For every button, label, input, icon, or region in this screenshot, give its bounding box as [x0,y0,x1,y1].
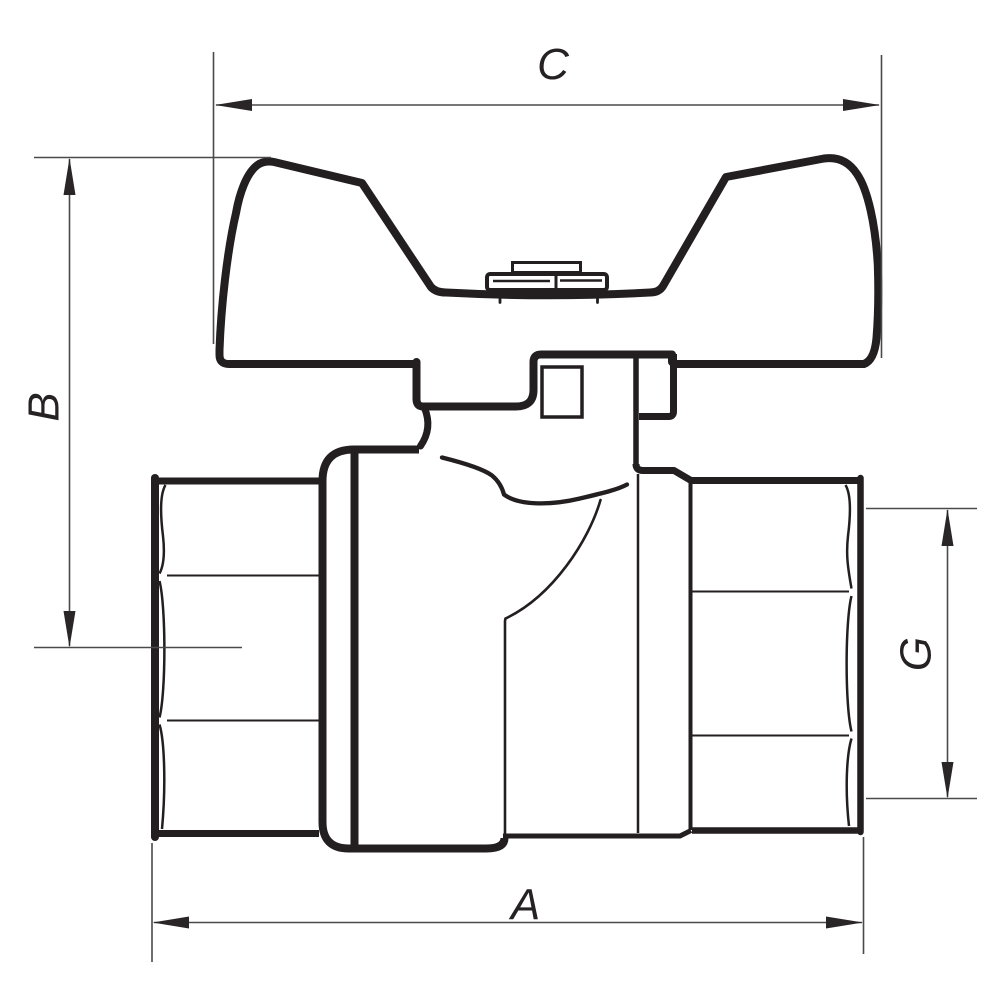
svg-text:B: B [20,392,69,421]
svg-text:A: A [508,881,540,930]
svg-text:C: C [537,40,570,89]
svg-text:G: G [892,637,941,671]
